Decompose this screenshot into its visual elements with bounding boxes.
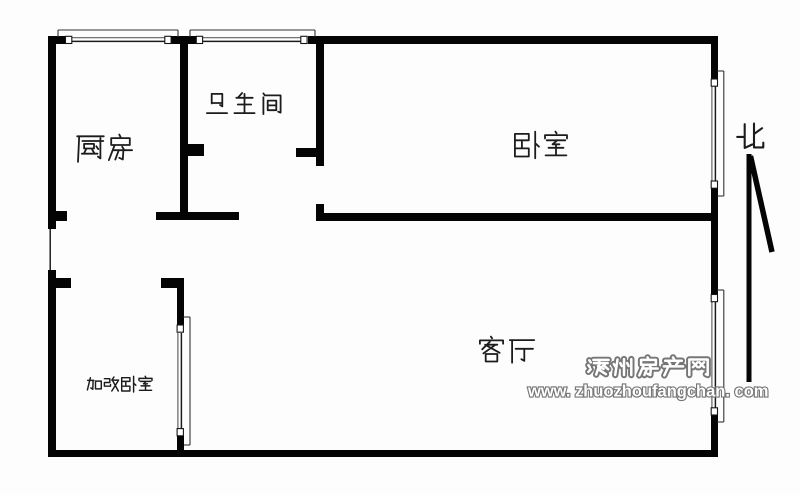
- svg-text:www. zhuozhoufangchan. com: www. zhuozhoufangchan. com: [527, 383, 768, 401]
